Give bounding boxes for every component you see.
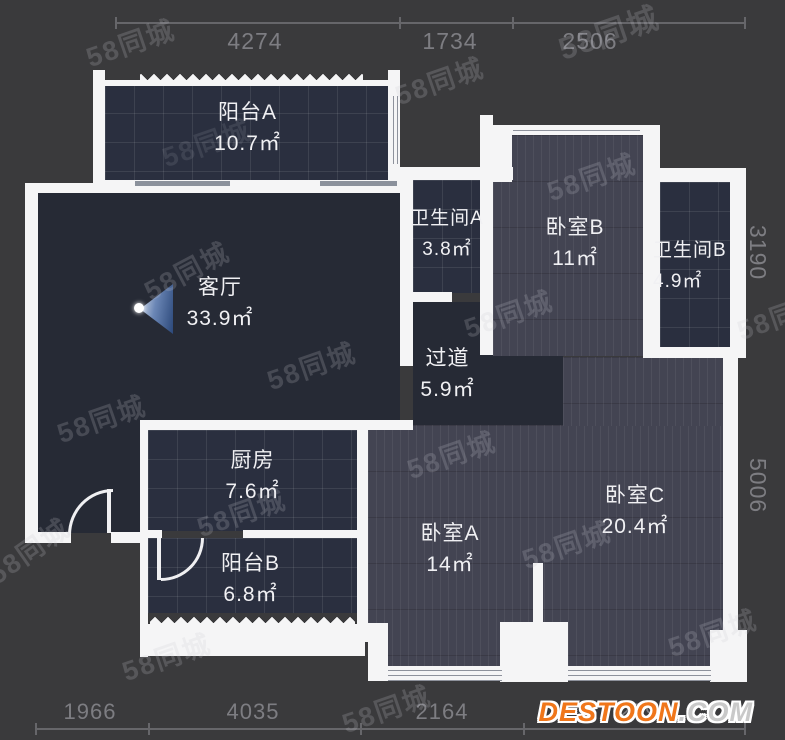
room-label-kitchen: 厨房 7.6㎡ [180, 445, 325, 507]
window-icon [388, 666, 502, 681]
wall [368, 623, 388, 681]
watermark: 58同城 [80, 8, 180, 75]
dimension-tick [115, 17, 117, 29]
room-area: 6.8㎡ [178, 579, 323, 610]
wall [140, 530, 162, 538]
room-label-bedroom-b: 卧室B 11㎡ [510, 212, 640, 274]
viewpoint-dot-icon [134, 303, 144, 313]
window-icon [390, 96, 398, 164]
room-area: 11㎡ [510, 243, 640, 274]
dim-top-2: 1734 [380, 28, 520, 55]
wall [243, 530, 365, 538]
room-name: 卧室A [385, 518, 515, 549]
wall [25, 532, 71, 543]
entry-door-leaf-icon [107, 489, 111, 533]
dim-top-1: 4274 [175, 28, 335, 55]
dim-bottom-2: 4035 [183, 699, 323, 725]
room-label-living: 客厅 33.9㎡ [150, 272, 290, 334]
room-area: 33.9㎡ [150, 303, 290, 334]
sliding-door-icon [320, 181, 397, 186]
wall [493, 125, 512, 182]
room-name: 卫生间B [653, 235, 748, 266]
floor-plan: 阳台A 10.7㎡ 客厅 33.9㎡ 卫生间A 3.8㎡ 卧室B 11㎡ 卫生间… [0, 0, 785, 740]
room-area: 3.8㎡ [393, 234, 501, 265]
wall [400, 292, 452, 302]
room-name: 厨房 [180, 445, 325, 476]
room-name: 过道 [390, 343, 505, 374]
room-label-balcony-b: 阳台B 6.8㎡ [178, 548, 323, 610]
dimension-tick [744, 17, 746, 29]
window-icon [568, 666, 711, 681]
wall [105, 80, 388, 86]
wall [533, 563, 543, 625]
room-area: 5.9㎡ [390, 374, 505, 405]
dimension-line-top [115, 22, 745, 24]
room-name: 阳台B [178, 548, 323, 579]
balcony-b-door-leaf-icon [157, 538, 161, 580]
watermark: 58同城 [389, 46, 489, 113]
room-name: 卧室B [510, 212, 640, 243]
wall [500, 622, 568, 682]
logo-tld: .COM [679, 697, 754, 727]
sliding-door-icon [135, 181, 230, 186]
balcony-b-window-icon [150, 611, 355, 625]
window-icon [513, 126, 640, 134]
room-label-bathroom-a: 卫生间A 3.8㎡ [393, 203, 501, 265]
wall [140, 420, 148, 657]
room-name: 卫生间A [393, 203, 501, 234]
logo-name: DESTOON [538, 697, 678, 727]
wall [140, 624, 365, 656]
room-area: 20.4㎡ [570, 511, 700, 542]
room-label-bedroom-c: 卧室C 20.4㎡ [570, 480, 700, 542]
dim-top-3: 2506 [520, 28, 660, 55]
destoon-logo: DESTOON.COM [538, 697, 753, 728]
room-label-hallway: 过道 5.9㎡ [390, 343, 505, 405]
room-name: 阳台A [160, 97, 335, 128]
room-area: 4.9㎡ [653, 266, 748, 297]
room-area: 14㎡ [385, 549, 515, 580]
room-label-bedroom-a: 卧室A 14㎡ [385, 518, 515, 580]
wall [25, 183, 38, 543]
dim-right-2: 5006 [744, 458, 771, 513]
floor-bedroom-c [563, 357, 723, 426]
room-name: 卧室C [570, 480, 700, 511]
wall [93, 70, 105, 193]
dimension-tick [523, 723, 525, 735]
wall [723, 357, 738, 633]
dimension-line-bottom [35, 728, 746, 730]
dim-bottom-3: 2164 [372, 699, 512, 725]
wall [710, 630, 747, 682]
wall [25, 183, 93, 193]
room-area: 7.6㎡ [180, 476, 325, 507]
room-label-bathroom-b: 卫生间B 4.9㎡ [645, 235, 748, 297]
room-label-balcony-a: 阳台A 10.7㎡ [160, 97, 335, 159]
dim-bottom-1: 1966 [20, 699, 160, 725]
wall [148, 420, 365, 430]
floor-hallway [503, 355, 563, 426]
room-area: 10.7㎡ [160, 128, 335, 159]
dimension-tick [360, 723, 362, 735]
wall [357, 420, 413, 430]
dim-right-1: 3190 [744, 225, 771, 280]
room-name: 客厅 [150, 272, 290, 303]
